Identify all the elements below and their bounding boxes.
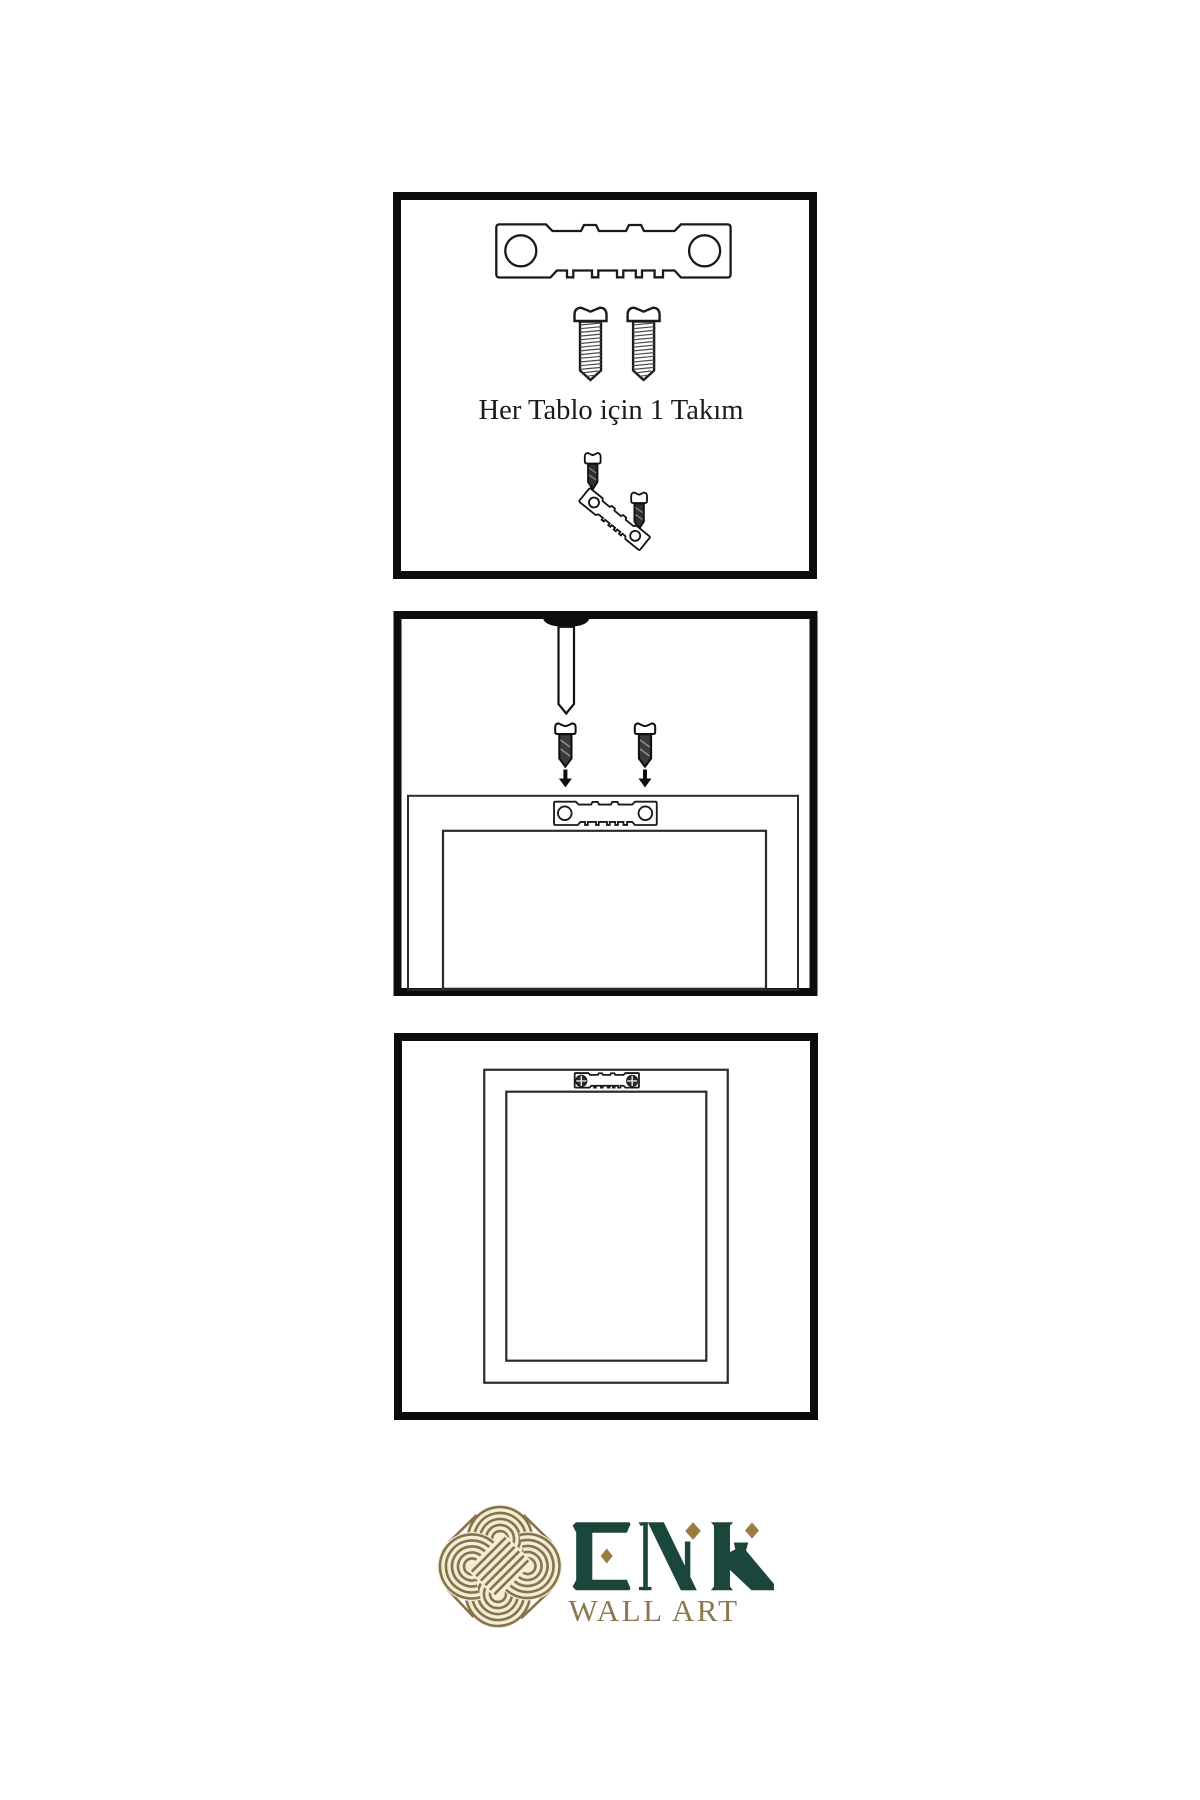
svg-text:Her Tablo için 1 Takım: Her Tablo için 1 Takım bbox=[479, 395, 744, 426]
svg-text:WALL ART: WALL ART bbox=[568, 1593, 739, 1628]
